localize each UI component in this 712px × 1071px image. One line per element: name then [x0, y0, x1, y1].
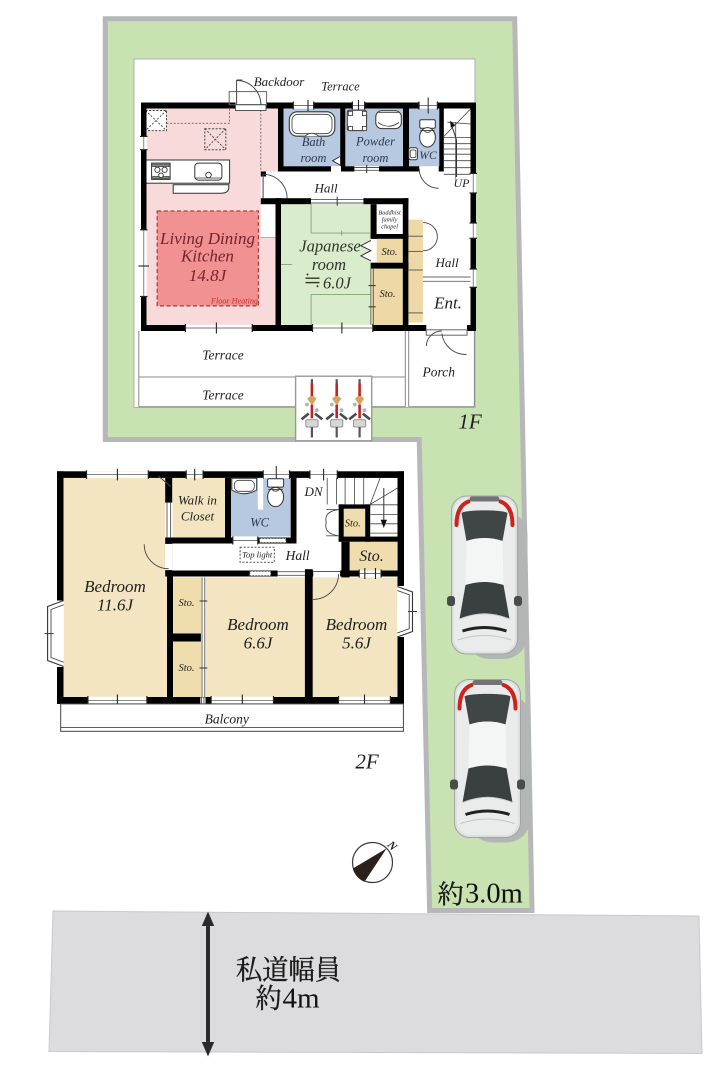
svg-text:DN: DN [303, 484, 323, 499]
svg-text:Backdoor: Backdoor [254, 74, 305, 89]
svg-text:Japanese: Japanese [299, 237, 360, 256]
svg-text:Porch: Porch [422, 365, 456, 380]
svg-text:room: room [363, 151, 389, 165]
svg-text:6.0J: 6.0J [323, 274, 352, 293]
svg-text:room: room [301, 151, 327, 165]
svg-text:5.6J: 5.6J [342, 634, 372, 653]
svg-text:family: family [382, 217, 398, 224]
svg-text:Terrace: Terrace [202, 348, 244, 363]
svg-text:Kitchen: Kitchen [180, 247, 234, 266]
svg-text:14.8J: 14.8J [189, 266, 228, 285]
svg-text:WC: WC [250, 516, 269, 530]
svg-text:6.6J: 6.6J [244, 634, 274, 653]
svg-text:Terrace: Terrace [202, 388, 244, 403]
svg-text:11.6J: 11.6J [97, 596, 134, 615]
svg-text:Ent.: Ent. [433, 294, 462, 313]
svg-text:Bath: Bath [302, 135, 326, 149]
svg-text:Sto.: Sto. [178, 598, 194, 609]
svg-text:Sto.: Sto. [345, 519, 361, 530]
svg-text:Balcony: Balcony [205, 712, 249, 727]
svg-text:2F: 2F [355, 750, 379, 774]
svg-text:Hall: Hall [313, 181, 338, 196]
svg-text:Floor Heating: Floor Heating [210, 297, 258, 306]
svg-text:Closet: Closet [181, 509, 215, 524]
svg-text:Hall: Hall [285, 548, 310, 563]
svg-text:Terrace: Terrace [321, 80, 360, 94]
svg-text:Sto.: Sto. [379, 289, 395, 300]
svg-text:WC: WC [419, 150, 437, 162]
svg-text:Bedroom: Bedroom [227, 615, 289, 634]
svg-text:room: room [312, 255, 346, 274]
svg-text:Walk in: Walk in [178, 493, 217, 508]
svg-text:Bedroom: Bedroom [84, 577, 146, 596]
svg-text:1F: 1F [458, 410, 482, 434]
svg-text:3.0m: 3.0m [465, 879, 523, 910]
svg-text:Sto.: Sto. [178, 663, 194, 674]
svg-text:4m: 4m [283, 983, 321, 1015]
svg-text:Buddhist: Buddhist [378, 210, 401, 217]
svg-text:UP: UP [454, 176, 471, 190]
svg-text:chapel: chapel [381, 224, 398, 231]
svg-text:Hall: Hall [434, 255, 459, 270]
svg-text:Bedroom: Bedroom [326, 615, 388, 634]
svg-text:Sto.: Sto. [381, 247, 397, 258]
svg-text:Top light: Top light [242, 550, 273, 560]
svg-text:Living Dining: Living Dining [159, 229, 255, 248]
svg-text:Sto.: Sto. [359, 548, 383, 565]
svg-text:Powder: Powder [355, 135, 395, 149]
